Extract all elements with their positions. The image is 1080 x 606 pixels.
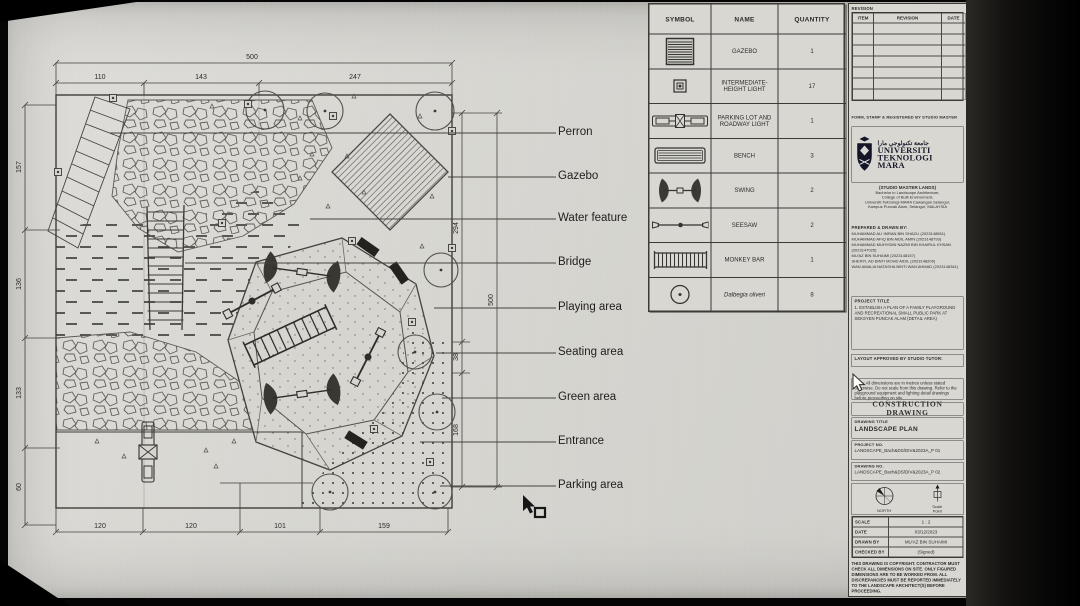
plan-label-playing-area: Playing area [558, 301, 622, 313]
prepared-by-label: PREPARED & DRAWN BY: [852, 225, 964, 230]
dim-top-3: 247 [349, 74, 361, 81]
dim-left-3: 133 [16, 387, 23, 399]
parking-roadway-light [139, 422, 157, 482]
dim-top-total: 500 [246, 54, 258, 61]
legend-name-bench: BENCH [712, 139, 779, 174]
dim-bottom-3: 101 [274, 523, 286, 530]
date-row-value: 03/12/2023 [889, 527, 964, 537]
copyright-note: THIS DRAWING IS COPYRIGHT. CONTRACTOR MU… [852, 561, 964, 594]
drawn-by-row-value: MU'AZ BIN SUHAIMI [889, 537, 964, 547]
legend-qty-bench: 3 [779, 139, 847, 174]
plan-label-water-feature: Water feature [558, 212, 627, 224]
university-logo-box: جامعة تكنولوجي مارا UNIVERSITI TEKNOLOGI… [852, 127, 964, 183]
dim-bottom-1: 120 [94, 523, 106, 530]
dim-left-4: 60 [16, 483, 23, 491]
checked-by-row-label: CHECKED BY [853, 547, 889, 557]
layout-approval-label: LAYOUT APPROVED BY STUDIO TUTOR: [855, 356, 961, 361]
prepared-name-6: WAN AMALIA NATASHA BINTI WAN AHMAD (2023… [852, 264, 964, 270]
dim-right-3: 168 [453, 424, 460, 436]
cad-pick-cursor [521, 494, 549, 527]
bench-symbol [650, 139, 712, 174]
north-caption: NORTH [871, 508, 897, 513]
legend-qty-swing: 2 [779, 174, 847, 209]
prepared-by-section: PREPARED & DRAWN BY: MUHAMMAD ALI IMRAN … [852, 225, 964, 292]
tree-symbol [650, 278, 712, 313]
mouse-pointer-cursor [851, 373, 869, 398]
dim-right-2: 38 [453, 353, 460, 361]
legend-name-parking-light: PARKING LOT AND ROADWAY LIGHT [712, 104, 779, 139]
university-name-line3: MARA [878, 162, 933, 170]
revision-header-date: DATE [942, 13, 966, 23]
project-no-box: PROJECT NO. LANDSCAPE_Bach&DS/DIV&2023A_… [852, 441, 964, 460]
legend-header-name: NAME [712, 5, 779, 35]
title-block: REVISION ITEM REVISION DATE FORM, STAMP … [848, 3, 967, 597]
drawing-no-value: LANDSCAPE_Bach&DS/DIV&2023A_P 02 [855, 469, 961, 474]
dim-bottom-4: 159 [378, 523, 390, 530]
drawing-no-box: DRAWING NO. LANDSCAPE_Bach&DS/DIV&2023A_… [852, 462, 964, 481]
plan-label-entrance: Entrance [558, 435, 604, 447]
plan-label-green-area: Green area [558, 391, 616, 403]
checked-by-row-value: (Signed) [889, 547, 964, 557]
legend-qty-monkey-bar: 1 [779, 243, 847, 278]
legend-name-seesaw: SEESAW [712, 208, 779, 243]
drawing-info-table: SCALE 1 : 2 DATE 03/12/2023 DRAWN BY MU'… [852, 516, 964, 558]
revision-label: REVISION [852, 6, 964, 11]
legend-header-symbol: SYMBOL [650, 5, 712, 35]
project-title-box: PROJECT TITLE 1. ESTABLISH A PLAN OF A F… [852, 296, 964, 349]
project-title-text: 1. ESTABLISH A PLAN OF A FAMILY PLAYGROU… [855, 305, 961, 322]
drawing-type-banner: CONSTRUCTION DRAWING [852, 402, 964, 415]
project-no-label: PROJECT NO. [855, 443, 961, 448]
legend-header-quantity: QUANTITY [779, 5, 847, 35]
seesaw-symbol [650, 208, 712, 243]
monitor-bezel-right [966, 0, 1080, 606]
date-row-label: DATE [853, 527, 889, 537]
plan-label-perron: Perron [558, 126, 593, 138]
scale-sub-caption: Point [931, 509, 944, 514]
plan-label-parking-area: Parking area [558, 479, 623, 491]
uitm-shield-logo [855, 136, 875, 174]
drawn-by-row-label: DRAWN BY [853, 537, 889, 547]
dim-top-2: 143 [195, 74, 207, 81]
revision-header-revision: REVISION [874, 13, 942, 23]
revision-header-item: ITEM [853, 13, 874, 23]
plan-label-seating-area: Seating area [558, 346, 623, 358]
parking-roadway-light-symbol [650, 104, 712, 139]
dim-right-1: 294 [453, 222, 460, 234]
legend-name-monkey-bar: MONKEY BAR [712, 243, 779, 278]
intermediate-height-light-symbol [650, 69, 712, 104]
legend-qty-parking-light: 1 [779, 104, 847, 139]
scale-row-label: SCALE [853, 517, 889, 527]
legend-name-tree-species: Dalbegia oliveri [712, 278, 779, 313]
monkey-bar-symbol [650, 243, 712, 278]
compass-box: NORTH Scale Point [852, 483, 964, 515]
legend-name-intermediate-light: INTERMEDIATE-HEIGHT LIGHT [712, 69, 779, 104]
gazebo-structure [332, 114, 448, 230]
drawing-title-box: DRAWING TITLE LANDSCAPE PLAN [852, 417, 964, 438]
gazebo-symbol [650, 35, 712, 70]
dim-right-total: 500 [488, 294, 495, 306]
drawing-title-value: LANDSCAPE PLAN [855, 425, 961, 433]
legend-table: SYMBOL NAME QUANTITY GAZEBO 1 INTERMEDIA… [648, 3, 845, 312]
project-title-label: PROJECT TITLE [855, 298, 961, 303]
legend-name-swing: SWING [712, 174, 779, 209]
legend-name-gazebo: GAZEBO [712, 35, 779, 70]
legend-qty-tree-species: 8 [779, 278, 847, 313]
plan-label-gazebo: Gazebo [558, 170, 598, 182]
scale-point-icon [931, 485, 944, 504]
layout-approval-box: LAYOUT APPROVED BY STUDIO TUTOR: [852, 354, 964, 367]
revision-section: REVISION ITEM REVISION DATE [852, 6, 964, 93]
address-line-4: Kampus Puncak Alam, Selangor, MALAYSIA [852, 205, 964, 210]
registration-note: FORM, STAMP & REGISTERED BY STUDIO MASTE… [852, 115, 964, 123]
dim-bottom-2: 120 [185, 523, 197, 530]
plan-label-bridge: Bridge [558, 256, 591, 268]
revision-table: ITEM REVISION DATE [852, 12, 964, 101]
drawing-title-label: DRAWING TITLE [855, 419, 961, 424]
legend-qty-seesaw: 2 [779, 208, 847, 243]
legend-qty-gazebo: 1 [779, 35, 847, 70]
north-compass-icon [871, 485, 897, 507]
dim-left-2: 136 [16, 278, 23, 290]
site-plan-canvas[interactable]: 500 110 143 247 157 136 133 60 294 38 16… [0, 0, 560, 570]
university-address: (STUDIO MASTER LANDS) Bachelor in Landsc… [852, 183, 964, 220]
project-no-value: LANDSCAPE_Bach&DS/DIV&2023A_P 01 [855, 448, 961, 453]
dim-left-1: 157 [16, 161, 23, 173]
legend-qty-intermediate-light: 17 [779, 69, 847, 104]
prepared-name-3: MUHAMMAD MUHYIDIN NAZMI BIN KHAIRUL EHSA… [852, 242, 964, 253]
drawing-no-label: DRAWING NO. [855, 464, 961, 469]
dim-top-1: 110 [94, 74, 105, 81]
scale-row-value: 1 : 2 [889, 517, 964, 527]
swing-symbol [650, 174, 712, 209]
